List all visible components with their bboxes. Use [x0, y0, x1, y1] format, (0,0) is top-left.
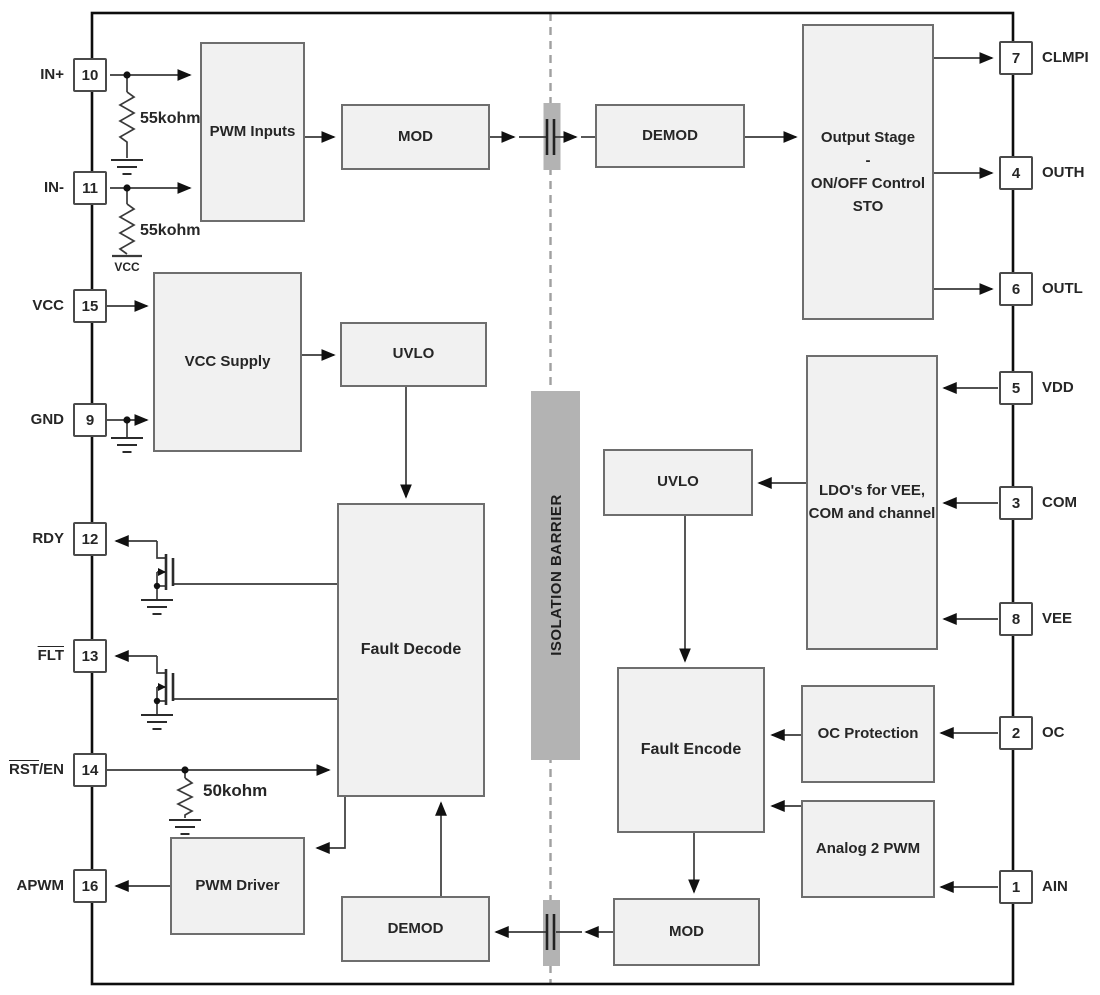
block-oc-protection: OC Protection: [801, 685, 935, 783]
resistor-55k-1: [120, 92, 134, 158]
pin-label-vdd: VDD: [1042, 379, 1074, 396]
block-ldo: LDO's for VEE, COM and channel: [806, 355, 938, 650]
pin-box-13: 13: [73, 639, 107, 673]
pin-label-outl: OUTL: [1042, 280, 1083, 297]
block-vcc-supply: VCC Supply: [153, 272, 302, 452]
pin-box-10: 10: [73, 58, 107, 92]
isolation-barrier-label: ISOLATION BARRIER: [548, 494, 565, 656]
pin-label-rdy: RDY: [0, 530, 64, 547]
ground-res1: [111, 160, 143, 174]
ground-res3: [169, 820, 201, 834]
pin-box-7: 7: [999, 41, 1033, 75]
block-demod-bottom: DEMOD: [341, 896, 490, 962]
pin-label-vee: VEE: [1042, 610, 1072, 627]
pin-label-in-plus: IN+: [0, 66, 64, 83]
pin-box-5: 5: [999, 371, 1033, 405]
block-fault-decode: Fault Decode: [337, 503, 485, 797]
block-uvlo-right: UVLO: [603, 449, 753, 516]
pin-label-gnd: GND: [0, 411, 64, 428]
block-output-stage: Output Stage - ON/OFF Control STO: [802, 24, 934, 320]
pin-box-6: 6: [999, 272, 1033, 306]
pin-label-oc: OC: [1042, 724, 1065, 741]
isolation-cap-bar-bottom: [543, 900, 560, 966]
gate-driver-block-diagram: ISOLATION BARRIER: [0, 0, 1100, 995]
vcc-rail-label: VCC: [105, 260, 149, 274]
pin-label-apwm: APWM: [0, 877, 64, 894]
pin-box-12: 12: [73, 522, 107, 556]
pin-box-3: 3: [999, 486, 1033, 520]
block-mod-top: MOD: [341, 104, 490, 170]
resistor-55k-2: [120, 204, 134, 254]
pin-box-4: 4: [999, 156, 1033, 190]
fet-bars: [166, 554, 173, 705]
pin-box-1: 1: [999, 870, 1033, 904]
ground-fet1: [141, 600, 173, 614]
pin-label-com: COM: [1042, 494, 1077, 511]
block-fault-encode: Fault Encode: [617, 667, 765, 833]
block-uvlo-left: UVLO: [340, 322, 487, 387]
pin-label-flt: FLT: [0, 647, 64, 664]
pin-label-in-minus: IN-: [0, 179, 64, 196]
ground-fet2: [141, 715, 173, 729]
block-demod-top: DEMOD: [595, 104, 745, 168]
wire-fault-decode-to-pwm-driver: [317, 797, 345, 848]
isolation-barrier: ISOLATION BARRIER: [531, 391, 580, 760]
resistor-label-55k-1: 55kohm: [140, 110, 200, 128]
pin-box-16: 16: [73, 869, 107, 903]
fet2-drain: [157, 656, 166, 673]
block-mod-bottom: MOD: [613, 898, 760, 966]
pin-label-vcc: VCC: [0, 297, 64, 314]
pin-box-9: 9: [73, 403, 107, 437]
pin-label-outh: OUTH: [1042, 164, 1085, 181]
ground-pin9: [111, 438, 143, 452]
block-analog2pwm: Analog 2 PWM: [801, 800, 935, 898]
pin-label-clmpi: CLMPI: [1042, 49, 1089, 66]
fet1-drain: [157, 541, 166, 558]
pin-label-rst-en: RST/EN: [0, 761, 64, 778]
pin-label-ain: AIN: [1042, 878, 1068, 895]
block-pwm-driver: PWM Driver: [170, 837, 305, 935]
pin-box-11: 11: [73, 171, 107, 205]
pin-box-15: 15: [73, 289, 107, 323]
pin-box-2: 2: [999, 716, 1033, 750]
pin-box-14: 14: [73, 753, 107, 787]
pin-box-8: 8: [999, 602, 1033, 636]
block-pwm-inputs: PWM Inputs: [200, 42, 305, 222]
resistor-label-50k: 50kohm: [203, 781, 267, 801]
resistor-label-55k-2: 55kohm: [140, 222, 200, 240]
resistor-50k: [178, 778, 192, 818]
